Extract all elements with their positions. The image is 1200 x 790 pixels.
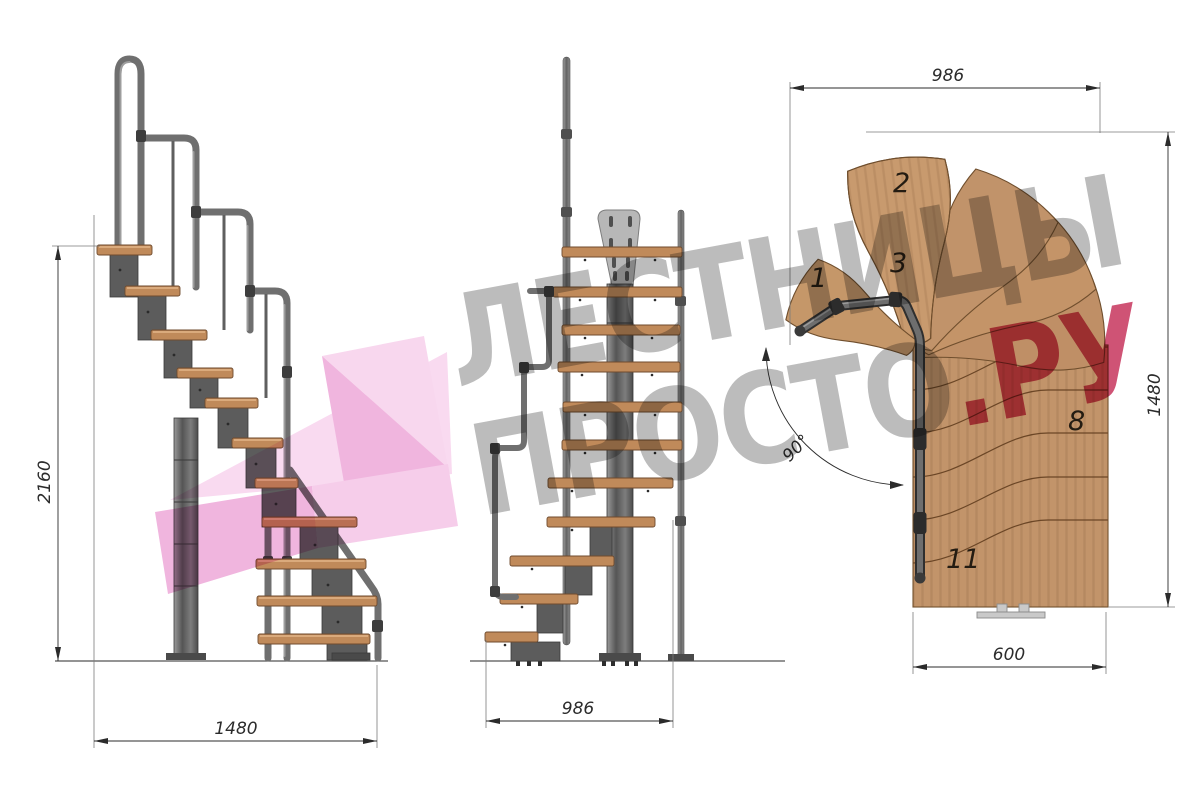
front-column-base [599,653,641,661]
dim-turn-angle: 90° [762,347,904,489]
dim-front-width-label: 986 [562,699,595,719]
post-joint [675,296,686,306]
front-right-post-base [668,654,694,661]
post-joint [561,207,572,217]
step-label-8: 8 [1068,406,1085,437]
blueprint-canvas: 2160 1480 [0,0,1200,790]
plan-straight-run [913,345,1108,607]
dim-side-width-label: 1480 [214,719,257,739]
dim-side-height: 2160 [35,246,100,661]
dim-plan-depth-label: 1480 [1145,373,1165,416]
dim-front-width: 986 [486,520,673,728]
rail-end-cap [915,573,926,584]
dim-turn-angle-label: 90° [779,431,814,466]
front-handrail [495,291,549,597]
step-label-1: 1 [810,263,827,294]
step-label-3: 3 [890,248,907,279]
step-label-2: 2 [893,168,910,199]
front-center-column [607,284,633,660]
dim-plan-bottom-width: 600 [913,612,1106,674]
dim-plan-width-label: 986 [932,66,965,86]
dim-side-height-label: 2160 [35,460,55,503]
rail-end-cap [795,326,806,337]
side-column-base [166,653,206,660]
front-elevation-view: 986 [470,57,785,728]
front-base-bolts [516,661,638,666]
step-label-11: 11 [946,544,980,575]
top-plan-view: 1 2 3 8 11 986 1480 [762,66,1175,674]
staircase-drawing: 2160 1480 [0,0,1200,790]
front-right-post [678,210,684,660]
post-joint [561,129,572,139]
dim-plan-bottom-width-label: 600 [993,645,1025,665]
post-joint [675,516,686,526]
